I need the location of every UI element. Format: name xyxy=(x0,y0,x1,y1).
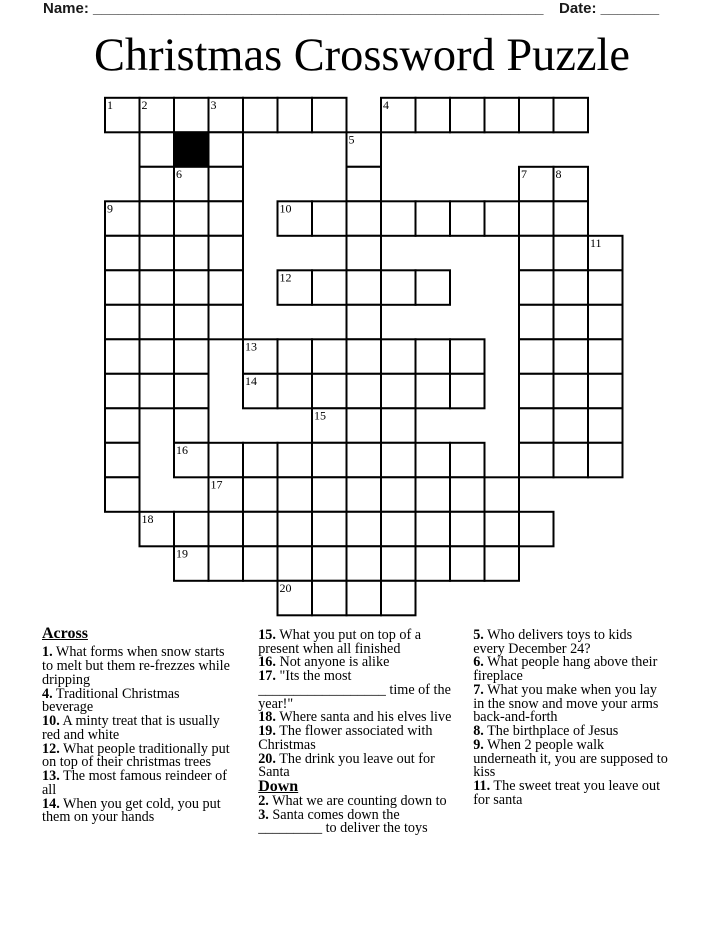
svg-text:4: 4 xyxy=(383,98,389,112)
svg-text:3: 3 xyxy=(211,98,217,112)
svg-text:10: 10 xyxy=(280,202,292,216)
svg-text:16: 16 xyxy=(176,443,188,457)
svg-text:6: 6 xyxy=(176,167,182,181)
svg-text:5: 5 xyxy=(349,133,355,147)
svg-text:17: 17 xyxy=(211,478,223,492)
svg-text:1: 1 xyxy=(107,98,113,112)
svg-text:7: 7 xyxy=(521,167,527,181)
svg-text:18: 18 xyxy=(142,512,154,526)
svg-text:11: 11 xyxy=(590,236,602,250)
svg-text:20: 20 xyxy=(280,581,292,595)
svg-text:12: 12 xyxy=(280,271,292,285)
svg-text:2: 2 xyxy=(142,98,148,112)
svg-text:9: 9 xyxy=(107,202,113,216)
svg-text:8: 8 xyxy=(556,167,562,181)
svg-text:13: 13 xyxy=(245,340,257,354)
svg-text:19: 19 xyxy=(176,547,188,561)
svg-text:14: 14 xyxy=(245,374,257,388)
svg-text:15: 15 xyxy=(314,409,326,423)
